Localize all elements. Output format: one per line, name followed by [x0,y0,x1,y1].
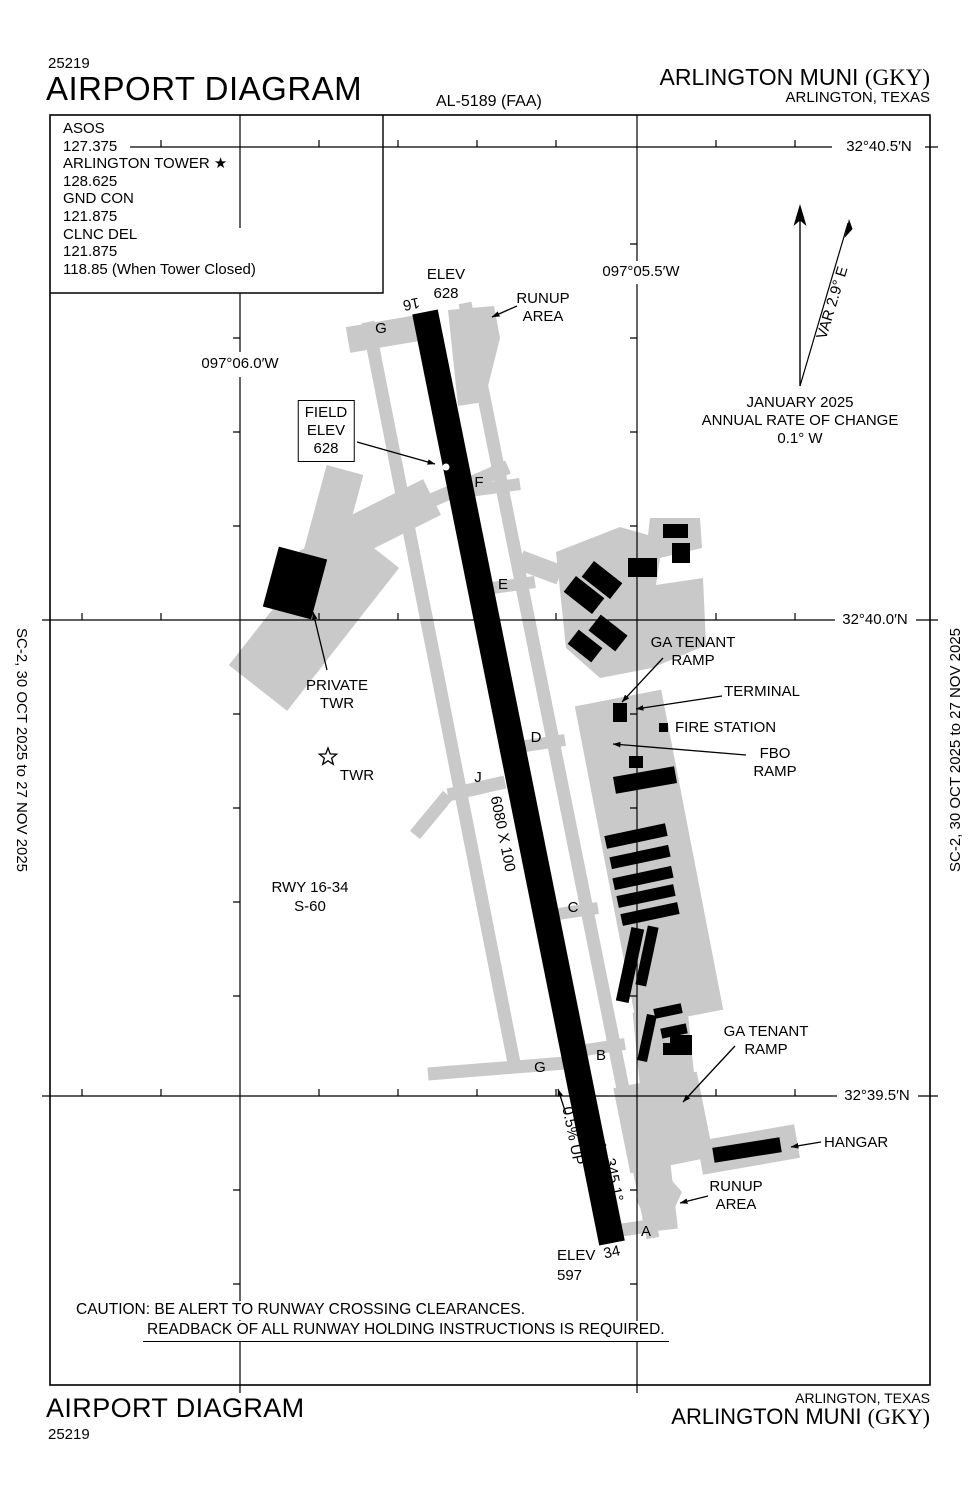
map-neatline [50,115,930,1385]
freq-line: 118.85 (When Tower Closed) [63,261,256,279]
runway-info: RWY 16-34 S-60 [272,878,349,916]
taxiway-label-a: A [641,1223,651,1241]
runway-info-id: RWY 16-34 [272,878,349,897]
taxiway-g-bottom [428,1062,578,1074]
procedure-id: AL-5189 (FAA) [436,92,542,112]
hangar-label: HANGAR [824,1134,888,1152]
elev-34-value: 597 [557,1266,595,1286]
elev-34-word: ELEV [557,1246,595,1266]
ga-word-2: RAMP [651,652,736,670]
twr-label: TWR [340,767,374,785]
field-elevation-box: FIELD ELEV 628 [298,400,355,462]
private-word-1: PRIVATE [306,677,368,695]
freq-line: ASOS [63,120,256,138]
airport-name: ARLINGTON MUNI [660,64,859,90]
elev-16-value: 628 [427,284,465,303]
ga-tenant-ramp-north-label: GA TENANT RAMP [651,634,736,670]
taxiway-label-j: J [474,769,482,787]
terminal-label: TERMINAL [724,683,800,701]
tower-star-icon [319,748,336,764]
field-elev-word-1: FIELD [305,404,348,422]
grid-ticks-lon1 [233,338,240,1284]
arrow-runup-north [492,306,517,317]
building-south-5 [663,1043,671,1055]
runway-number-16: 16 [401,292,421,313]
elev-34-label: ELEV 597 [557,1246,595,1286]
ga-word-1: GA TENANT [724,1023,809,1041]
magnetic-north-arrowhead-icon [845,219,853,238]
page-title: AIRPORT DIAGRAM [46,69,362,109]
latitude-label-1: 32°40.5′N [842,138,916,156]
taxiway-label-g-bottom: G [534,1059,546,1077]
freq-line: GND CON [63,190,256,208]
latitude-label-2: 32°40.0′N [838,611,912,629]
private-twr-label: PRIVATE TWR [306,677,368,713]
variation-rate-1: ANNUAL RATE OF CHANGE [702,412,899,430]
caution-line-1: CAUTION: BE ALERT TO RUNWAY CROSSING CLE… [72,1301,529,1320]
runup-word-2: AREA [516,308,569,326]
fbo-word-2: RAMP [753,763,796,781]
freq-line: CLNC DEL [63,226,256,244]
longitude-label-1: 097°06.0′W [197,355,282,373]
variation-rate-2: 0.1° W [777,430,822,448]
taxiway-label-f: F [474,474,483,492]
fire-station-label: FIRE STATION [659,719,776,737]
airport-title: ARLINGTON MUNI (GKY) [660,63,930,92]
building-ga-north-6 [672,543,690,563]
field-elev-value: 628 [305,440,348,458]
ga-tenant-ramp-south-label: GA TENANT RAMP [724,1023,809,1059]
runup-word-1: RUNUP [709,1178,762,1196]
footer-airport-icao: (GKY) [868,1404,930,1429]
private-word-2: TWR [306,695,368,713]
edge-note-left: SC-2, 30 OCT 2025 to 27 NOV 2025 [12,628,30,872]
airport-icao: (GKY) [865,65,930,90]
fire-station-icon [659,723,668,732]
airport-diagram-sheet: 25219 AIRPORT DIAGRAM AL-5189 (FAA) ARLI… [0,0,978,1500]
runup-word-2: AREA [709,1196,762,1214]
field-elev-word-2: ELEV [305,422,348,440]
footer-airport-name: ARLINGTON MUNI [671,1404,861,1429]
runup-word-1: RUNUP [516,290,569,308]
freq-line: 121.875 [63,208,256,226]
latitude-label-3: 32°39.5′N [840,1087,914,1105]
caution-line-2: READBACK OF ALL RUNWAY HOLDING INSTRUCTI… [143,1321,669,1342]
fbo-ramp-label: FBO RAMP [753,745,796,781]
building-fbo-small [629,756,643,768]
field-elevation-point [443,464,450,471]
ga-word-1: GA TENANT [651,634,736,652]
building-ga-north-7 [628,558,657,577]
freq-line: ARLINGTON TOWER ★ [63,155,256,173]
freq-line: 121.875 [63,243,256,261]
building-south-4 [670,1035,692,1055]
arrow-runup-south [680,1196,708,1203]
variation-date: JANUARY 2025 [746,394,853,412]
taxiway-label-d: D [531,729,542,747]
grid-ticks-lat1 [161,140,874,147]
elev-16-label: ELEV 628 [427,265,465,303]
runway-number-34: 34 [602,1242,622,1263]
airport-city: ARLINGTON, TEXAS [786,89,931,107]
footer-airport-title: ARLINGTON MUNI (GKY) [671,1404,930,1431]
taxiway-label-c: C [568,899,579,917]
chart-number-bottom: 25219 [48,1426,90,1444]
taxiway-j-leg [415,795,448,835]
frequency-list: ASOS 127.375 ARLINGTON TOWER ★ 128.625 G… [63,120,256,278]
freq-line: 127.375 [63,138,256,156]
freq-line: 128.625 [63,173,256,191]
footer-title: AIRPORT DIAGRAM [46,1392,305,1425]
building-terminal [613,703,627,722]
edge-note-right: SC-2, 30 OCT 2025 to 27 NOV 2025 [947,628,965,872]
elev-16-word: ELEV [427,265,465,284]
building-ga-north-5 [663,524,688,538]
longitude-label-2: 097°05.5′W [598,263,683,281]
apron-east-link [520,560,560,575]
runup-area-north-label: RUNUP AREA [516,290,569,326]
taxiway-label-b: B [596,1047,606,1065]
taxiway-label-e: E [498,576,508,594]
grid-ticks-lat3 [82,1089,874,1096]
ga-word-2: RAMP [724,1041,809,1059]
runway-info-strength: S-60 [272,897,349,916]
fire-station-text: FIRE STATION [675,719,776,736]
runup-area-south-label: RUNUP AREA [709,1178,762,1214]
fbo-word-1: FBO [753,745,796,763]
taxiway-label-g-top: G [375,320,387,338]
